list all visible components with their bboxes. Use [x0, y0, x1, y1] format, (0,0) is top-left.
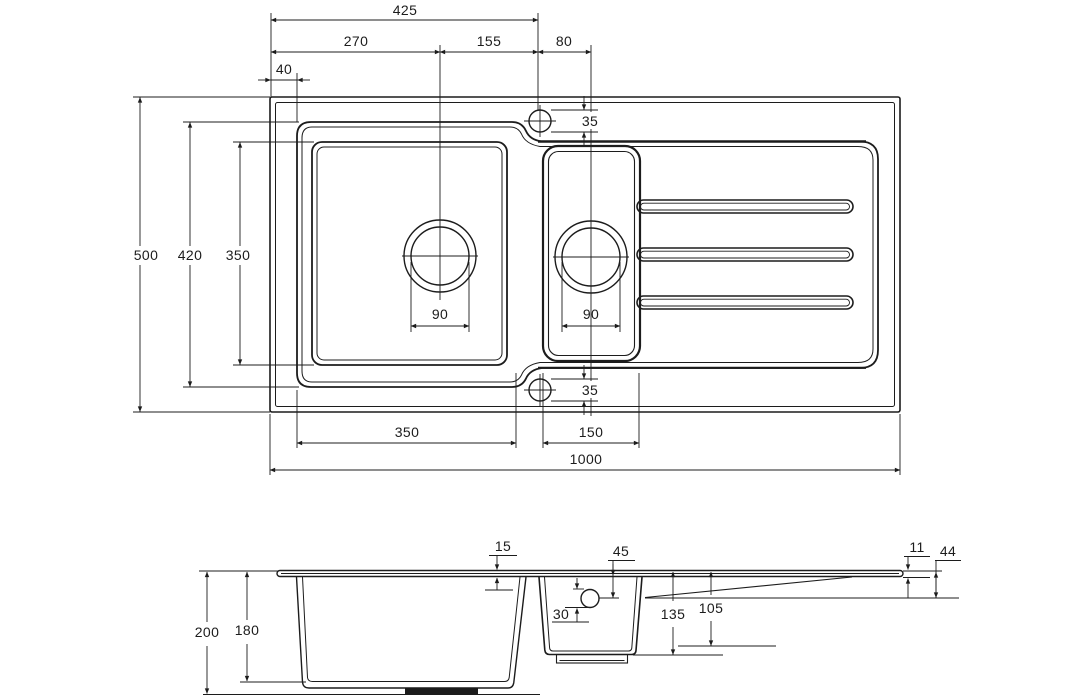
dim-label-35-top: 35 — [582, 113, 598, 129]
overflow-hole — [581, 590, 599, 608]
dim-label-500: 500 — [134, 247, 159, 263]
dim-label-200: 200 — [195, 624, 220, 640]
half-bowl-inner — [549, 152, 635, 356]
recess-outline-outer — [297, 122, 878, 387]
section-dimensions: 200 180 15 45 30 135 105 11 44 — [195, 538, 961, 694]
main-waste-hole — [402, 45, 478, 300]
dim-label-155: 155 — [477, 33, 502, 49]
dim-label-45: 45 — [613, 543, 629, 559]
drainer-slope-line — [645, 577, 852, 598]
dim-label-150: 150 — [579, 424, 604, 440]
dim-label-270: 270 — [344, 33, 369, 49]
dim-label-425: 425 — [393, 2, 418, 18]
dim-label-90-half: 90 — [583, 306, 599, 322]
main-waste-boss — [405, 688, 478, 695]
recess-outline-inner — [302, 127, 873, 382]
sink-technical-drawing: 425 270 155 80 40 35 500 420 350 90 90 3… — [0, 0, 1091, 700]
dim-label-15: 15 — [495, 538, 511, 554]
dim-label-105: 105 — [699, 600, 724, 616]
dim-label-90-main: 90 — [432, 306, 448, 322]
dim-label-40: 40 — [276, 61, 292, 77]
main-bowl-inner — [317, 147, 502, 360]
section-view: 200 180 15 45 30 135 105 11 44 — [195, 538, 961, 695]
main-bowl-section-outer — [297, 577, 527, 688]
dim-label-11: 11 — [909, 539, 924, 555]
half-bowl-outer — [543, 146, 640, 361]
dim-label-30: 30 — [553, 606, 569, 622]
dim-label-1000: 1000 — [570, 451, 603, 467]
dim-label-180: 180 — [235, 622, 260, 638]
dim-label-420: 420 — [178, 247, 203, 263]
dim-label-80: 80 — [556, 33, 572, 49]
plan-view: 425 270 155 80 40 35 500 420 350 90 90 3… — [133, 2, 900, 475]
dim-label-135: 135 — [661, 606, 686, 622]
main-bowl-outer — [312, 142, 507, 365]
half-waste-boss — [557, 655, 628, 664]
drainer-grooves — [637, 200, 853, 309]
drawing-svg: 425 270 155 80 40 35 500 420 350 90 90 3… — [0, 0, 1091, 700]
dim-label-44: 44 — [940, 543, 956, 559]
dim-label-35-bottom: 35 — [582, 382, 598, 398]
main-bowl-section-inner — [303, 577, 521, 682]
dim-label-350-bottom: 350 — [395, 424, 420, 440]
plan-dimensions: 425 270 155 80 40 35 500 420 350 90 90 3… — [133, 2, 900, 475]
dim-label-350-left: 350 — [226, 247, 251, 263]
